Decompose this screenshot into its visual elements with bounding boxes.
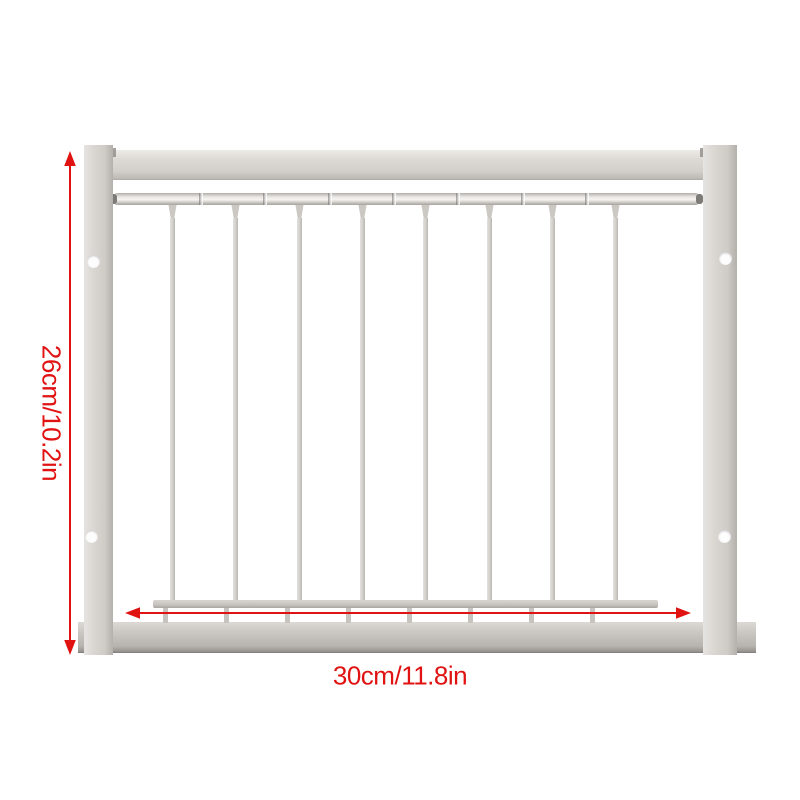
slide-rail-joint <box>585 193 589 205</box>
slide-rail-joint <box>392 193 396 205</box>
gate-bar <box>360 218 365 601</box>
screw-hole <box>85 530 98 543</box>
gate-bar <box>170 218 175 601</box>
width-dimension-arrow <box>124 604 692 622</box>
screw-hole <box>719 252 732 265</box>
gate-top-rail <box>110 150 706 180</box>
gate-bar <box>297 218 302 601</box>
gate-bar <box>233 218 238 601</box>
product-photo: 26cm/10.2in 30cm/11.8in <box>0 0 800 800</box>
height-dimension-label: 26cm/10.2in <box>36 345 67 481</box>
screw-hole <box>87 255 100 268</box>
gate-bar <box>423 218 428 601</box>
width-dimension-label: 30cm/11.8in <box>333 661 467 692</box>
slide-rail-joint <box>456 193 460 205</box>
gate-bar <box>487 218 492 601</box>
gate-left-post <box>84 145 113 655</box>
slide-rail-joint <box>328 193 332 205</box>
slide-rail-joint <box>199 193 203 205</box>
gate-bar <box>613 218 618 601</box>
gate-right-post <box>703 145 737 655</box>
gate-slide-rail <box>112 193 701 205</box>
screw-hole <box>718 530 731 543</box>
slide-rail-joint <box>263 193 267 205</box>
slide-rail-joint <box>521 193 525 205</box>
gate-bar <box>550 218 555 601</box>
gate-bottom-rail <box>78 622 756 653</box>
